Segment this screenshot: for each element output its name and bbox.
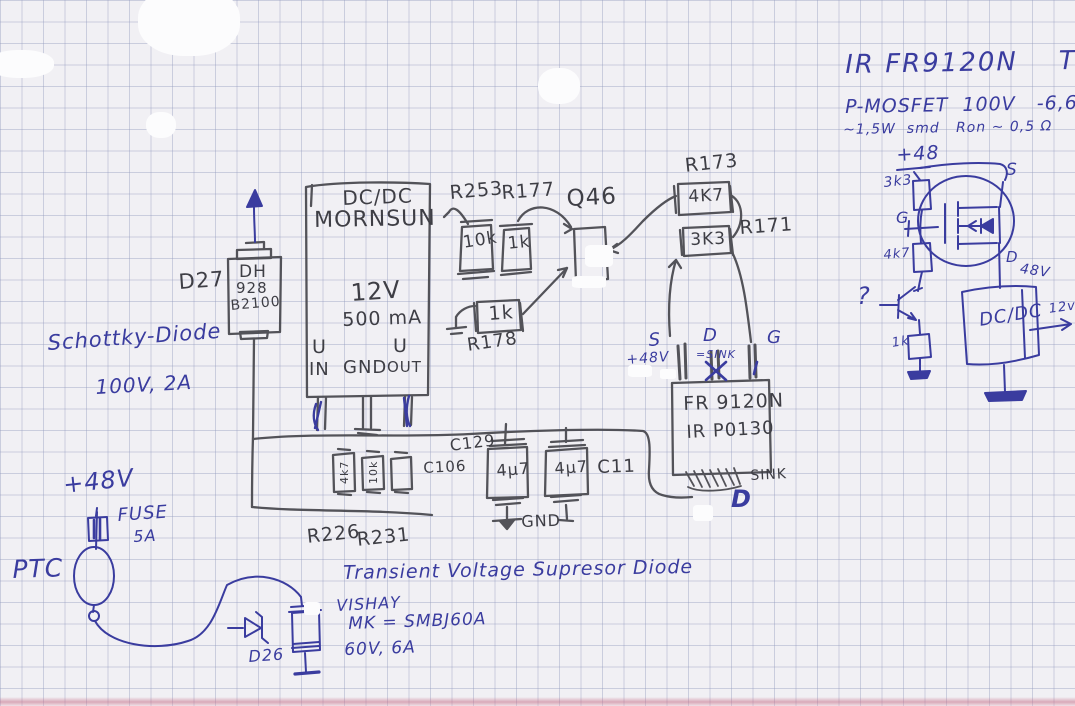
label-sink: SINK — [750, 467, 787, 483]
label-out12: 12v — [1048, 299, 1075, 316]
label-pin-uout-out: OUT — [387, 360, 422, 375]
label-gnd: GND — [521, 513, 561, 530]
label-fuse: FUSE — [117, 503, 168, 524]
label-r177-val: 1k — [507, 234, 531, 253]
whiteout-patch — [304, 602, 320, 615]
label-fr-pin-d-note: =SINK — [696, 349, 736, 360]
schematic-page: D27 DH 928 B2100 DC/DC MORNSUN 12V 500 m… — [0, 0, 1075, 706]
label-question: ? — [857, 284, 871, 308]
label-d27-ref: D27 — [178, 269, 225, 293]
paper-edge-tint — [0, 697, 1075, 706]
label-big-d: D — [731, 487, 752, 511]
label-cap2-val: 4µ7 — [554, 459, 589, 477]
note-mosfet-title: IR FR9120N TO252 — [845, 47, 1075, 78]
label-r178-val: 1k — [488, 303, 514, 324]
whiteout-patch — [572, 276, 606, 288]
label-rail48: +48V — [62, 466, 135, 497]
label-r226-val: 4k7 — [339, 461, 350, 484]
label-r171-val: 3K3 — [690, 231, 726, 249]
label-r253-ref: R253 — [449, 179, 504, 203]
whiteout-patch — [585, 245, 613, 267]
label-d26: D26 — [248, 647, 285, 665]
label-pin-uin-u: U — [312, 338, 327, 357]
label-fr9120-line2: IR P0130 — [686, 419, 775, 442]
label-1k: 1k — [891, 335, 910, 350]
label-mornsun-name: MORNSUN — [314, 208, 436, 232]
label-3k3: 3k3 — [883, 173, 913, 190]
d26-diode-symbol — [228, 612, 268, 643]
label-plus48-top: +48 — [896, 144, 940, 165]
fuse-symbol — [74, 508, 114, 621]
label-r171-ref: R171 — [739, 215, 794, 238]
label-pin-uout-u: U — [393, 337, 408, 356]
whiteout-patch — [660, 369, 676, 379]
note-tvs-line2: VISHAY — [336, 595, 401, 614]
label-c11: C11 — [597, 458, 636, 477]
label-4k7: 4k7 — [883, 247, 911, 262]
label-gate-g: G — [896, 210, 909, 226]
label-drain-d: D — [1006, 250, 1019, 265]
note-tvs-line3: MK = SMBJ60A — [348, 611, 487, 633]
note-mosfet-specs2: ~1,5W smd Ron ~ 0,5 Ω — [843, 119, 1052, 137]
label-cap1-val: 4µ7 — [496, 461, 531, 479]
up-arrow-marker — [247, 190, 262, 242]
note-mosfet-specs: P-MOSFET 100V -6,6A — [845, 94, 1075, 117]
label-mornsun-12v: 12V — [350, 278, 402, 305]
label-d27-line3: B2100 — [230, 295, 281, 313]
label-pin-gnd: GND — [343, 359, 387, 377]
label-mornsun-dcdc: DC/DC — [342, 186, 413, 208]
mosfet-sketch — [897, 163, 1014, 291]
label-fuse-5a: 5A — [133, 528, 157, 545]
whiteout-patch — [538, 68, 580, 104]
label-pin-uin-in: IN — [309, 361, 330, 379]
whiteout-patch — [693, 505, 713, 521]
label-r177-ref: R177 — [501, 180, 556, 203]
label-drain-volt: 48V — [1019, 262, 1051, 280]
label-ptc: PTC — [12, 555, 64, 582]
whiteout-patch — [138, 0, 240, 56]
label-c106: C106 — [423, 459, 467, 476]
label-d27-line2: 928 — [236, 281, 268, 296]
ptc-wire — [95, 577, 301, 646]
q46-to-r173-wire — [609, 196, 676, 253]
label-r231-val: 10k — [368, 461, 379, 484]
label-fr-pin-d: D — [703, 327, 718, 345]
label-r173-val: 4K7 — [688, 187, 725, 206]
whiteout-patch — [0, 50, 54, 78]
whiteout-patch — [146, 112, 176, 138]
label-source-s: S — [1006, 162, 1018, 179]
label-fr-pin-g: G — [767, 329, 782, 347]
label-mornsun-500ma: 500 mA — [342, 308, 422, 330]
note-tvs-line4: 60V, 6A — [344, 640, 416, 659]
label-fr9120-line1: FR 9120N — [683, 391, 784, 414]
label-fr-pin-s: S — [648, 331, 662, 350]
note-schottky-line2: 100V, 2A — [95, 372, 193, 397]
label-fr-pin-s-note: +48V — [626, 350, 670, 367]
label-q46-ref: Q46 — [566, 185, 618, 211]
